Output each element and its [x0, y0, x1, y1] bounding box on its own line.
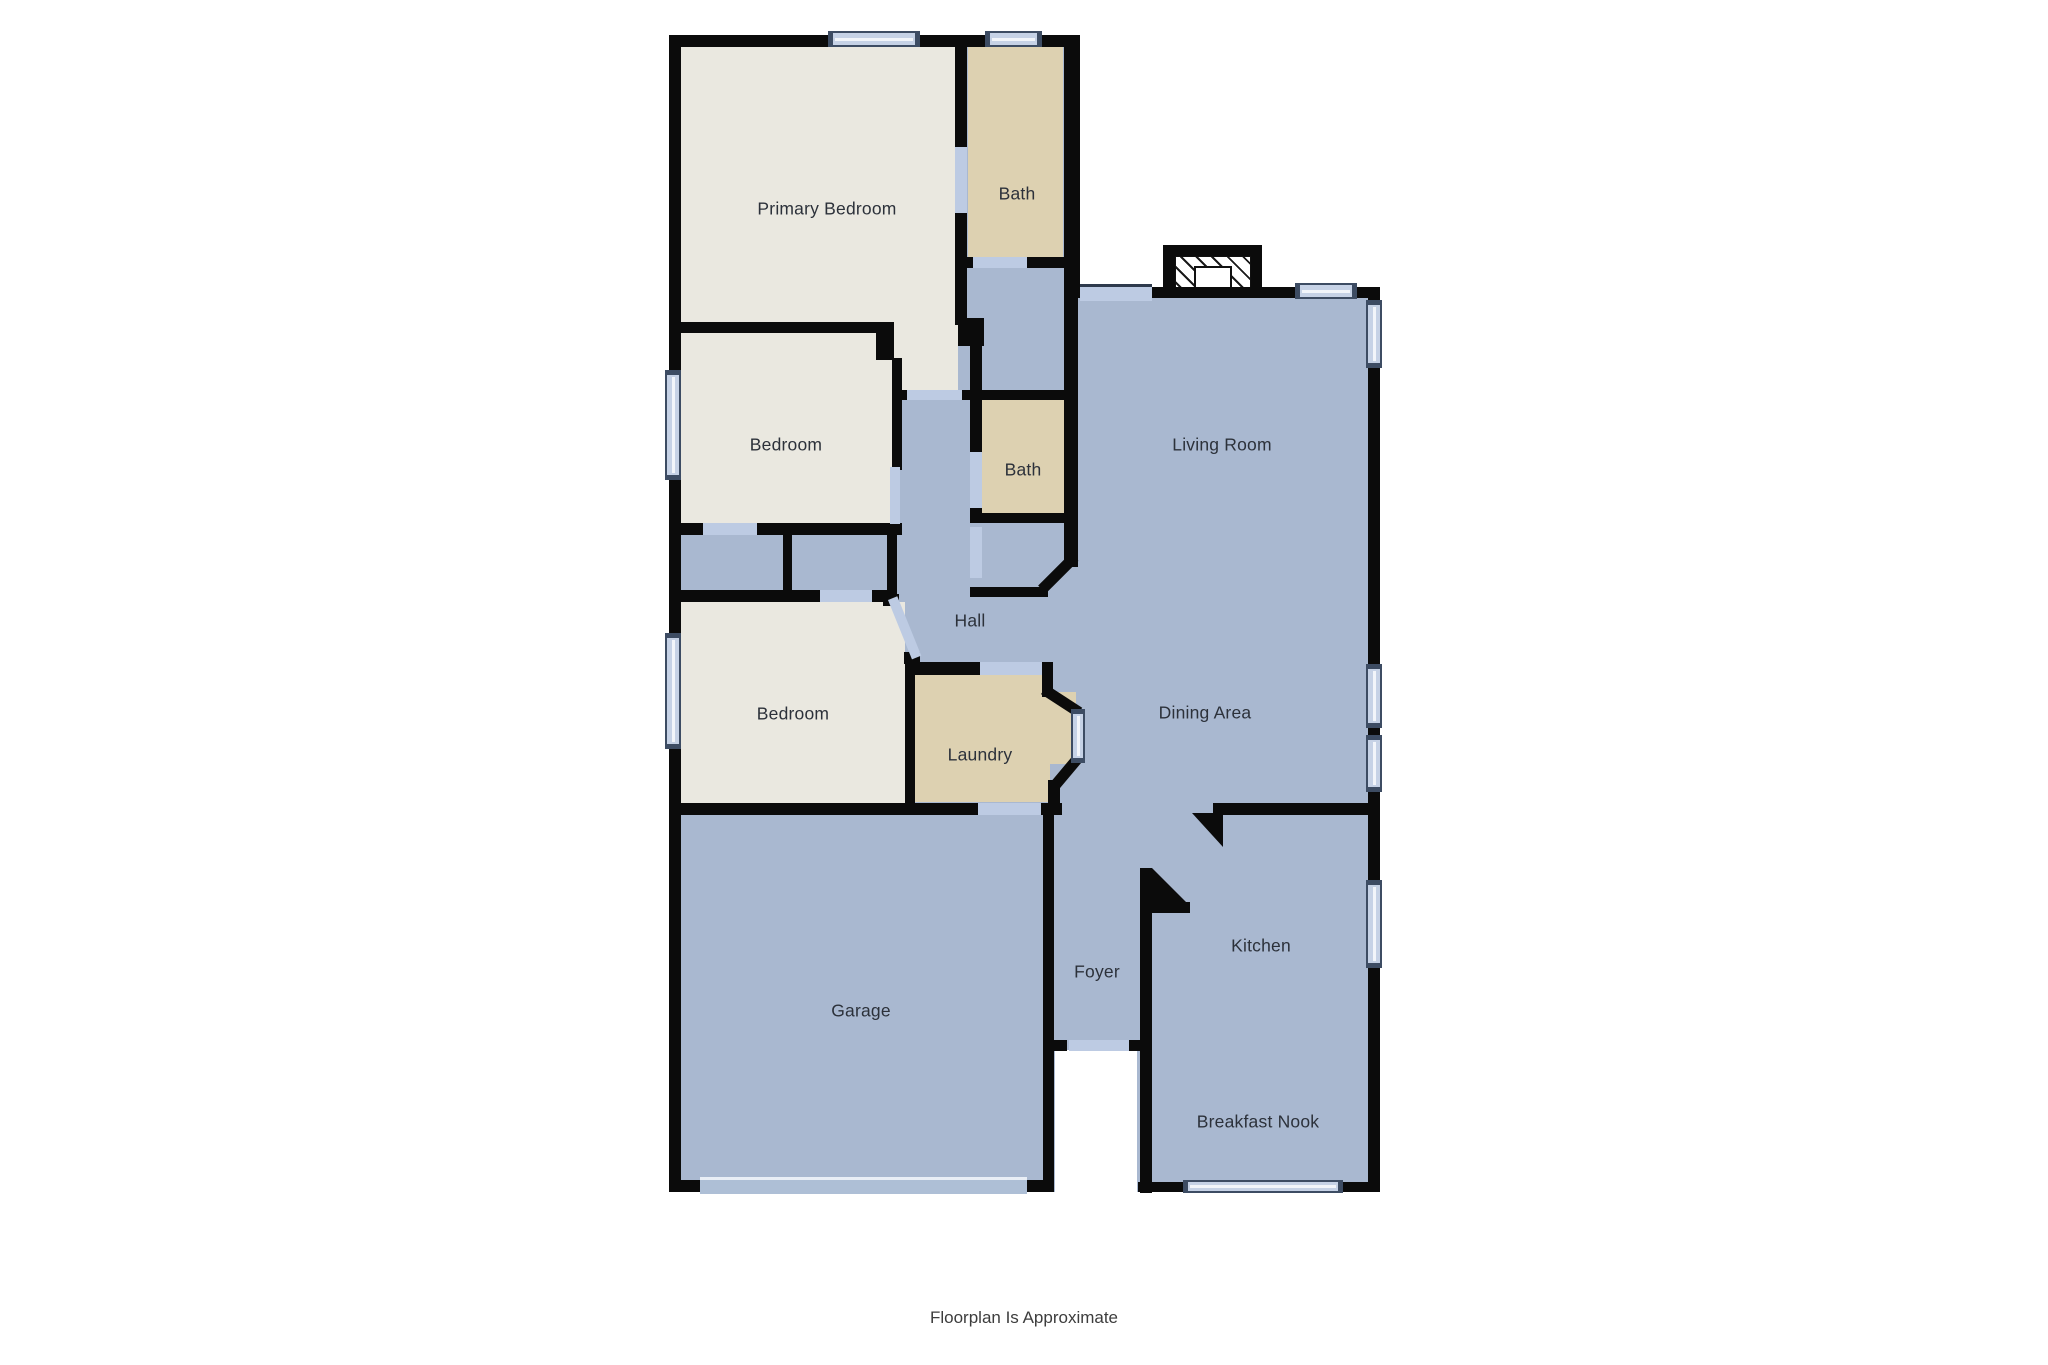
- room-label-bath2: Bath: [1005, 460, 1042, 481]
- laundry-hall-door: [980, 662, 1042, 675]
- left-exterior-wall: [669, 35, 681, 1192]
- front-door: [1069, 1040, 1129, 1051]
- bath-laundry-floor: [982, 400, 1065, 513]
- room-label-bedroom1: Bedroom: [750, 435, 822, 456]
- front-door-right-stub: [1129, 1040, 1143, 1051]
- room-label-garage: Garage: [831, 1001, 891, 1022]
- primary-bath-door: [955, 147, 967, 213]
- dining-window-lower: [1366, 735, 1382, 792]
- bath2-door: [970, 452, 982, 508]
- bedroom1-step-wall: [876, 322, 894, 360]
- breakfast-nook-window: [1183, 1180, 1343, 1193]
- bath-laundry-floor: [968, 47, 1063, 257]
- garage-corner-left: [669, 1180, 702, 1192]
- room-label-hall: Hall: [955, 611, 986, 632]
- living-hall-divider-wall: [1064, 287, 1078, 567]
- kitchen-top-wall: [1213, 803, 1380, 815]
- room-label-dining-area: Dining Area: [1159, 703, 1252, 724]
- bath1-window: [985, 31, 1042, 47]
- bedroom-floor: [681, 333, 892, 523]
- kitchen-window: [1366, 880, 1382, 968]
- dining-window-upper: [1366, 664, 1382, 728]
- bedroom2-window: [665, 633, 681, 749]
- bedroom1-window: [665, 370, 681, 480]
- bedroom1-closet-door: [703, 523, 757, 535]
- bedroom-floor: [681, 602, 905, 803]
- room-label-living-room: Living Room: [1172, 435, 1271, 456]
- bedroom1-right-wall: [892, 358, 902, 470]
- room-label-foyer: Foyer: [1074, 962, 1120, 983]
- room-label-laundry: Laundry: [948, 745, 1013, 766]
- room-label-bedroom2: Bedroom: [757, 704, 829, 725]
- garage-vehicle-door: [700, 1177, 1027, 1194]
- bath-laundry-floor: [915, 675, 1050, 802]
- floor-area: [1080, 287, 1380, 1050]
- primary-bedroom-door: [907, 390, 962, 400]
- laundry-left-wall: [905, 662, 915, 813]
- kitchen-foyer-wall: [1140, 868, 1152, 1193]
- room-label-primary-bedroom: Primary Bedroom: [757, 199, 896, 220]
- bedroom-floor: [681, 47, 955, 322]
- bedroom1-door: [890, 467, 900, 524]
- room-label-kitchen: Kitchen: [1231, 936, 1291, 957]
- garage-corner-right: [1026, 1180, 1054, 1192]
- floor-area: [669, 1050, 1055, 1192]
- laundry-bay-window: [1071, 709, 1085, 763]
- hall-closet-door: [970, 527, 982, 578]
- living-room-side-window: [1366, 300, 1382, 368]
- room-label-breakfast-nook: Breakfast Nook: [1197, 1112, 1319, 1133]
- room-label-bath1: Bath: [999, 184, 1036, 205]
- primary-bottom-wall: [669, 322, 882, 333]
- hall-closet-wall: [887, 523, 897, 602]
- closet-bottom-wall: [970, 587, 1048, 597]
- footer-note: Floorplan Is Approximate: [930, 1308, 1118, 1328]
- laundry-garage-door: [978, 803, 1041, 815]
- floorplan: Floorplan Is Approximate Primary Bedroom…: [0, 0, 2048, 1365]
- bedroom2-closet-door: [820, 590, 872, 602]
- closet-divider-wall: [783, 535, 792, 592]
- garage-right-wall: [1043, 813, 1054, 1192]
- patio-door: [1080, 284, 1152, 301]
- bath1-hall-door: [973, 257, 1027, 268]
- living-room-top-window: [1295, 283, 1357, 299]
- bath2-bottom-wall: [970, 513, 1077, 523]
- primary-bedroom-window: [828, 31, 920, 47]
